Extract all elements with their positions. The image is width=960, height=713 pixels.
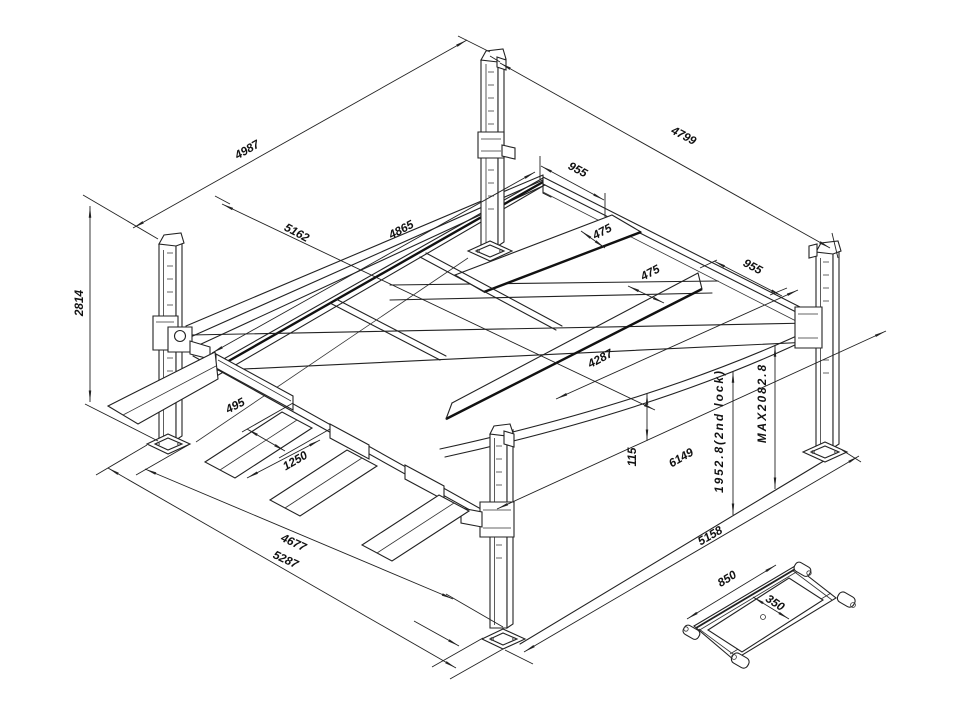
- svg-text:2814: 2814: [72, 289, 86, 317]
- svg-text:115: 115: [625, 447, 639, 466]
- svg-text:MAX2082.8: MAX2082.8: [755, 363, 769, 443]
- svg-text:1952.8(2nd lock): 1952.8(2nd lock): [712, 369, 726, 493]
